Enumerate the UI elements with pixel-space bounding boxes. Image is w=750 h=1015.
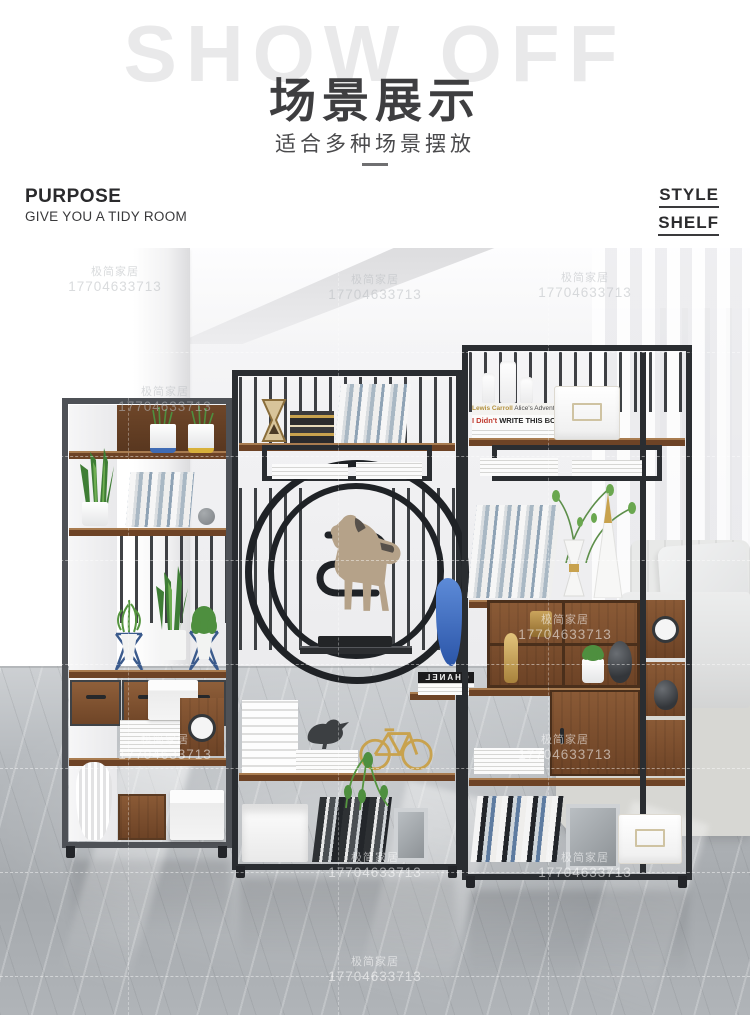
page-title: 场景展示 [0, 62, 750, 131]
flat-magazines [480, 458, 558, 476]
watermark-dash-line [0, 560, 750, 561]
candle [520, 377, 533, 403]
succulent-plant [580, 639, 606, 661]
picture-frame [394, 808, 428, 862]
storage-box [170, 790, 224, 840]
purpose-subheading: GIVE YOU A TIDY ROOM [25, 209, 187, 224]
flat-magazines [356, 462, 422, 479]
shelf-foot [678, 876, 687, 888]
open-storage-box [242, 804, 308, 862]
drawer-handle [86, 695, 106, 699]
white-gold-box [618, 814, 682, 864]
shelf-foot [466, 876, 475, 888]
watermark-dash-line [0, 768, 750, 769]
flat-magazines [572, 460, 642, 476]
book-spine-didnt: I Didn't WRITE THIS BOOK [472, 415, 564, 427]
shelf-foot [66, 846, 75, 858]
hourglass-vase [560, 538, 588, 598]
watermark-dash-line [0, 872, 750, 873]
snake-plant [74, 446, 118, 504]
horse-shelf-board [300, 646, 412, 654]
clock-cubby [180, 698, 224, 756]
watermark-dash-line [0, 352, 750, 353]
shelf-label: SHELF [658, 213, 719, 236]
box-label-plate [635, 829, 665, 847]
dark-vase [654, 680, 678, 710]
bird-sculpture [302, 710, 352, 750]
box-label-plate [572, 403, 602, 421]
candle [500, 361, 516, 403]
leaning-books [471, 796, 564, 862]
shelf-board [69, 528, 226, 536]
door-handle [560, 728, 564, 744]
alarm-clock [652, 616, 679, 643]
shelf-unit-middle: CHANEL [232, 370, 462, 870]
leaning-books [335, 384, 411, 443]
alarm-clock [188, 714, 216, 742]
watermark-dash-line [338, 248, 339, 1015]
book-spine-alice: Lewis Carroll Alice's Adventures in Wond… [472, 403, 564, 415]
shelf-foot [218, 846, 227, 858]
clock-cubby [646, 600, 685, 658]
cone-vase [592, 493, 624, 598]
shelf-board [69, 670, 226, 678]
stacked-books [472, 427, 564, 438]
stacked-books [474, 748, 544, 774]
shelf-board [469, 778, 685, 786]
plant-pot [188, 424, 214, 453]
subtitle-underline [362, 163, 388, 166]
watermark-dash-line [0, 456, 750, 457]
page-subtitle: 适合多种场景摆放 [0, 128, 750, 158]
book-author-gold: Lewis Carroll [472, 405, 513, 412]
dark-vase [608, 641, 632, 683]
product-photo: CHANEL [0, 248, 750, 1015]
mirror-frame [566, 804, 620, 870]
cabinet-door [550, 690, 640, 776]
style-heading-block: STYLE SHELF [658, 185, 719, 241]
white-book-stack [242, 700, 298, 773]
purpose-heading: PURPOSE [25, 186, 121, 208]
plant-pot [82, 502, 108, 526]
shelf-unit-right: I Didn't WRITE THIS BOOK Lewis Carroll A… [462, 345, 692, 880]
trailing-plant [336, 752, 400, 814]
style-label: STYLE [659, 185, 719, 208]
white-gold-box [554, 386, 620, 440]
watermark-dash-line [548, 248, 549, 1015]
stacked-books [120, 720, 186, 756]
plant-pot [582, 659, 604, 683]
hourglass [260, 398, 288, 443]
plant-pot [150, 424, 176, 453]
horse-sculpture [322, 498, 402, 638]
flat-magazines [272, 464, 348, 479]
book-row [126, 472, 195, 527]
white-ribbed-vase [76, 762, 112, 840]
watermark-dash-line [0, 976, 750, 977]
book-spine-red-text: I Didn't [472, 416, 497, 425]
watermark-dash-line [128, 248, 129, 1015]
vase-cubby [646, 662, 685, 716]
shelf-unit-left [62, 398, 232, 848]
decor-ball [198, 508, 215, 525]
stacked-books-gold [290, 411, 334, 443]
wood-storage-box [118, 794, 166, 840]
plant-trio [112, 538, 230, 670]
drawer [70, 680, 121, 726]
wood-cube-cabinet [487, 600, 640, 688]
watermark-dash-line [0, 664, 750, 665]
candle [482, 373, 495, 403]
gold-figurine [504, 633, 518, 683]
page: { "header": { "watermark_text": "SHOW OF… [0, 0, 750, 1015]
